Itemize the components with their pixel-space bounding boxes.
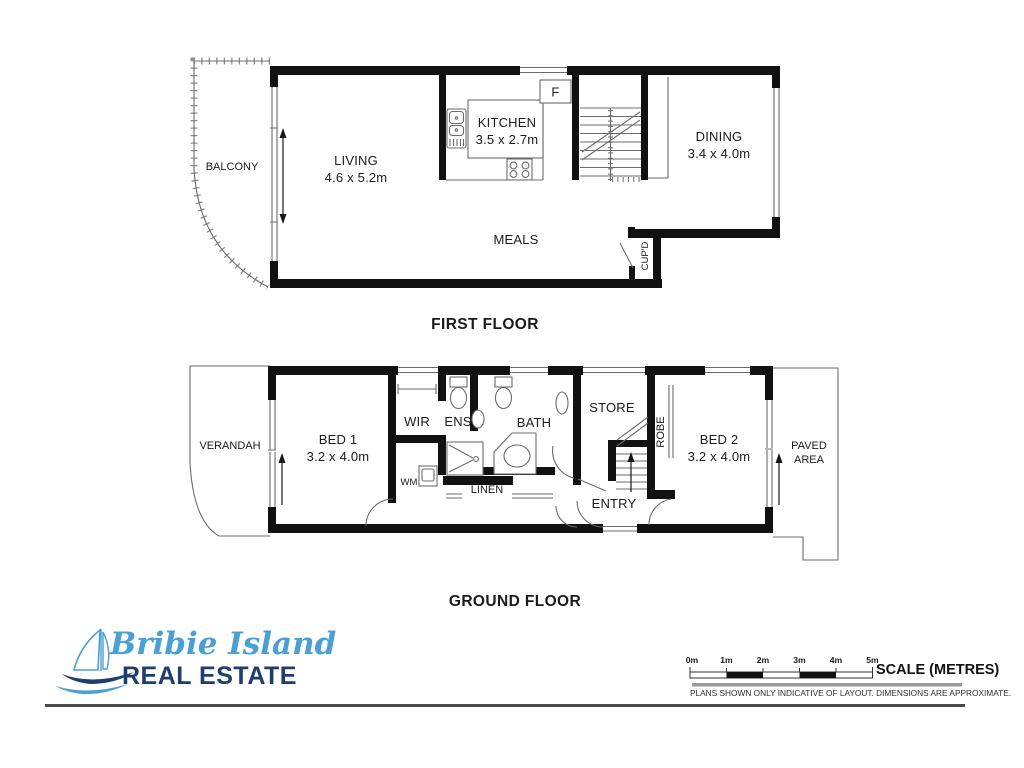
bed2-slider-arrow-icon: [776, 453, 783, 505]
ens-basin-icon: [472, 410, 484, 428]
wir-label: WIR: [404, 414, 430, 429]
bed1-label: BED 1: [319, 432, 358, 447]
bath-label: BATH: [517, 415, 552, 430]
ens-label: ENS: [444, 414, 471, 429]
scale-tick-1m: 1m: [720, 655, 733, 665]
balcony-outline: [194, 61, 270, 287]
stove-icon: [507, 159, 532, 180]
logo-script-text: Bribie Island: [110, 626, 330, 662]
first-floor-plan: BALCONY LIVING 4.6 x 5.2m KITCHEN 3.5 x …: [194, 61, 780, 333]
bath-basin-icon: [556, 392, 568, 414]
agency-logo: Bribie Island REAL ESTATE: [48, 624, 328, 704]
slider-arrow-icon: [280, 128, 287, 224]
ens-toilet-icon: [450, 377, 467, 409]
bed2-door-arc: [649, 499, 671, 525]
robe-label: ROBE: [655, 416, 667, 447]
ground-floor-stairs: [616, 417, 648, 492]
bath-toilet-icon: [495, 377, 512, 409]
washing-machine-icon: [419, 466, 437, 486]
paved-area-label-1: PAVED: [791, 440, 827, 452]
cupboard-label: CUP'D: [640, 241, 651, 270]
bed2-dims: 3.2 x 4.0m: [688, 449, 751, 464]
linen-label: LINEN: [471, 484, 503, 496]
hall-door-arc: [556, 506, 577, 527]
cupboard-door-line: [620, 243, 633, 268]
bed1-slider-arrow-icon: [279, 453, 286, 505]
scale-title: SCALE (METRES): [876, 662, 999, 678]
wm-label: WM: [401, 477, 418, 488]
shower-icon: [447, 442, 483, 475]
bed2-label: BED 2: [700, 432, 739, 447]
scale-tick-3m: 3m: [793, 655, 806, 665]
bottom-rule: [45, 704, 965, 707]
ground-floor-labels: VERANDAH BED 1 3.2 x 4.0m WIR ENS BATH S…: [199, 400, 826, 610]
kitchen-label: KITCHEN: [478, 115, 536, 130]
fridge-label: F: [551, 85, 559, 100]
meals-label: MEALS: [493, 232, 538, 247]
dining-dims: 3.4 x 4.0m: [688, 146, 751, 161]
first-floor-title: FIRST FLOOR: [431, 316, 539, 333]
bed1-dims: 3.2 x 4.0m: [307, 449, 370, 464]
ground-floor-title: GROUND FLOOR: [449, 593, 581, 610]
entry-threshold: [603, 527, 637, 532]
robe-rail: [669, 385, 673, 458]
scale-tick-0m: 0m: [686, 655, 699, 665]
bathtub-icon: [494, 433, 536, 474]
sink-icon: [447, 109, 466, 148]
verandah-label: VERANDAH: [199, 440, 260, 452]
scale-tick-2m: 2m: [757, 655, 770, 665]
logo-bold-text: REAL ESTATE: [122, 662, 332, 691]
scale-block: 0m 1m 2m 3m 4m 5m SCALE (METRES) PLANS S…: [680, 652, 980, 702]
ground-floor-plan: VERANDAH BED 1 3.2 x 4.0m WIR ENS BATH S…: [190, 366, 838, 610]
bed1-door-arc: [366, 499, 393, 526]
store-door-line: [578, 479, 606, 491]
scale-tick-4m: 4m: [830, 655, 843, 665]
balcony-label: BALCONY: [206, 161, 259, 173]
store-label: STORE: [589, 400, 635, 415]
wir-rail: [398, 384, 436, 394]
first-floor-labels: BALCONY LIVING 4.6 x 5.2m KITCHEN 3.5 x …: [206, 85, 751, 334]
entry-label: ENTRY: [592, 496, 637, 511]
first-floor-stairs: [580, 77, 668, 181]
scale-disclaimer: PLANS SHOWN ONLY INDICATIVE OF LAYOUT. D…: [690, 688, 1011, 698]
dining-label: DINING: [696, 129, 743, 144]
paved-area-label-2: AREA: [794, 454, 825, 466]
bath-door-arc: [553, 446, 574, 478]
living-dims: 4.6 x 5.2m: [325, 170, 388, 185]
kitchen-dims: 3.5 x 2.7m: [476, 132, 539, 147]
living-label: LIVING: [334, 153, 378, 168]
